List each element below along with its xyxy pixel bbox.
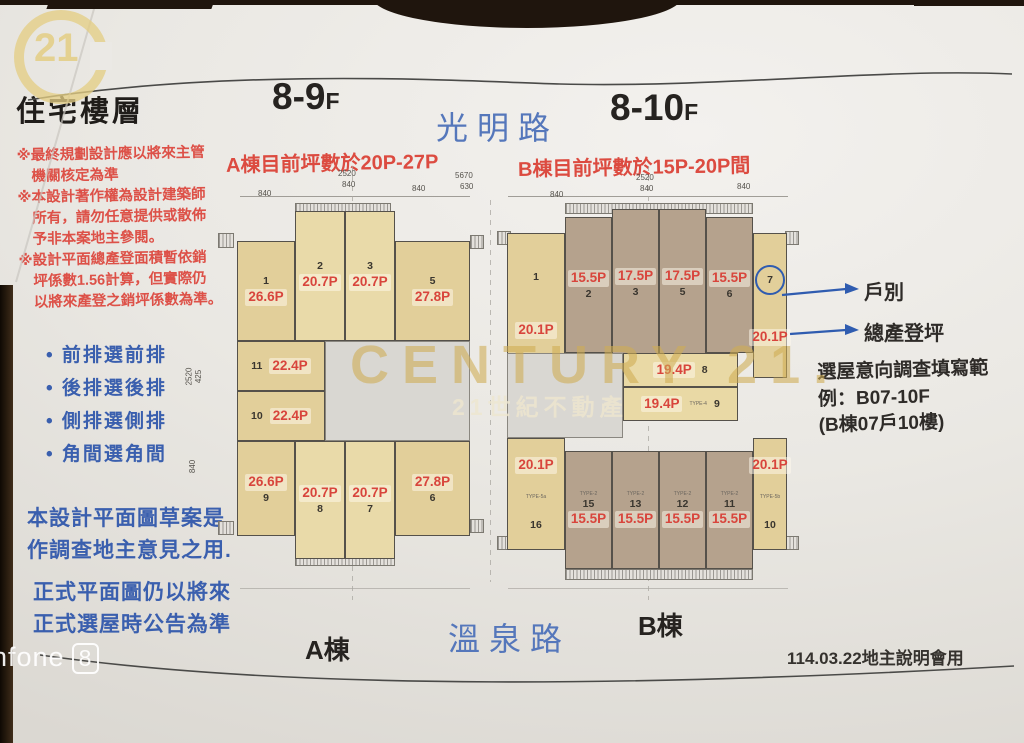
unit-type-label: TYPE-2 [674,492,692,497]
unit-room: 20.1P TYPE-5b 10 [753,438,787,550]
dim-between-outer: 5670 [455,171,473,180]
floor-range-b: 8-10F [610,87,698,129]
unit-room: 20.7P 7 [345,441,395,559]
draft-purpose-note: 本設計平面圖草案是 作調查地主意見之用. [27,503,232,566]
corner-balcony [470,519,484,533]
century21-logo: 21 [12,2,112,106]
table-edge-top-left [46,0,214,9]
unit-area: 15.5P [709,511,750,528]
dim-b-left: 840 [550,190,563,199]
unit-number: 2 [586,289,592,300]
unit-area: 20.7P [299,274,340,291]
dim-b-right: 840 [737,182,750,191]
dim-a-side-mid: 425 [194,370,203,383]
unit-room: 5 27.8P [395,241,470,341]
unit-area: 26.6P [245,289,286,306]
unit-type-label: TYPE-5b [760,495,780,500]
unit-number: 6 [430,493,436,504]
dim-line-a-bottom [240,588,470,589]
unit-number: 3 [367,261,373,272]
meeting-date-note: 114.03.22地主說明會用 [787,644,964,669]
floor-range-a-suffix: F [325,88,339,114]
unit-area: 27.8P [412,474,453,491]
unit-number: 8 [317,504,323,515]
table-edge-top-right [914,0,1024,6]
corner-balcony [785,536,799,550]
building-b-label: B棟 [638,606,683,643]
unit-area: 19.4P [641,396,682,413]
dim-a-side-upper: 2520 [184,368,193,386]
dim-a-total: 2520 [338,169,356,178]
unit-room: TYPE-2 11 15.5P [706,451,753,569]
dim-b-total: 2520 [636,173,654,182]
unit-room: TYPE-2 13 15.5P [612,451,659,569]
unit-area: 17.5P [615,268,656,285]
unit-area: 20.1P [515,457,556,474]
unit-number: 11 [251,361,262,372]
unit-area: 26.6P [245,474,286,491]
logo-ring-gap [90,42,112,70]
unit-number: 7 [767,275,773,286]
road-name-bottom: 溫泉路 [448,614,571,660]
unit-room: TYPE-2 12 15.5P [659,451,706,569]
camera-watermark: nfone8 [0,642,99,674]
unit-room: 15.5P 2 [565,217,612,353]
unit-room: 26.6P 9 [237,441,295,536]
corner-balcony [218,233,234,248]
corner-balcony [470,235,484,249]
unit-number: 11 [724,499,735,510]
unit-number: 10 [764,520,776,531]
unit-area: 15.5P [568,270,609,287]
unit-room: 2 20.7P [295,211,345,341]
dim-a-center: 840 [342,180,355,189]
unit-number: 13 [630,499,642,510]
balcony-hatch [565,569,753,580]
selection-rule-4: • 角間選角間 [46,439,167,466]
unit-type-label: TYPE-4 [689,402,707,407]
unit-number: 5 [430,276,436,287]
building-a-label: A棟 [305,630,350,667]
unit-room: 15.5P 6 [706,217,753,353]
unit-number: 3 [633,287,639,298]
logo-number: 21 [34,26,79,71]
survey-example-note: 選屋意向調查填寫範 例：B07-10F (B棟07戶10樓) [817,356,990,440]
unit-highlight-circle: 7 [755,265,785,295]
photographed-floor-plan-document: 8-9F 光明路 8-10F A棟目前坪數於20P-27P B棟目前坪數於15P… [0,0,1024,743]
unit-number: 6 [727,289,733,300]
unit-room: 11 22.4P [237,341,325,391]
brand-watermark-subtitle: 21世紀不動產 [452,388,628,422]
unit-area: 15.5P [568,511,609,528]
area-range-note-b: B棟目前坪數於15P-20P間 [518,149,751,182]
unit-area: 17.5P [662,268,703,285]
unit-number: 9 [263,493,269,504]
unit-number: 5 [680,287,686,298]
unit-number: 1 [263,276,269,287]
table-edge-left [0,285,13,743]
unit-number: 10 [251,411,263,422]
brand-watermark: CENTURY 21. [350,334,841,396]
unit-type-label: TYPE-5a [526,495,546,500]
floor-range-b-suffix: F [684,99,698,125]
unit-type-label: TYPE-2 [721,492,739,497]
unit-number: 12 [677,499,689,510]
floor-range-a-number: 8-9 [272,76,325,117]
dim-between-inner: 630 [460,182,473,191]
dim-line-a-top [240,196,470,197]
disclaimer-notes: ※最終規劃設計應以將來主管 機關核定為準 ※本設計著作權為設計建築師 所有，請勿… [17,142,244,314]
final-plan-note: 正式平面圖仍以將來 正式選屋時公告為準 [33,577,231,640]
selection-rule-2: • 後排選後排 [46,373,167,400]
unit-area: 15.5P [662,511,703,528]
unit-room: TYPE-2 15 15.5P [565,451,612,569]
unit-number: 15 [583,499,595,510]
unit-area: 20.7P [349,485,390,502]
dim-a-side-lower: 840 [188,460,197,473]
unit-area: 22.4P [269,358,310,375]
corner-balcony [218,521,234,535]
unit-number: 7 [367,504,373,515]
selection-rule-1: • 前排選前排 [46,340,167,367]
unit-area: 15.5P [709,270,750,287]
unit-area: 22.4P [270,408,311,425]
camera-watermark-number: 8 [72,643,100,674]
unit-room: 27.8P 6 [395,441,470,536]
road-name-top: 光明路 [436,103,559,149]
unit-room: 10 22.4P [237,391,325,441]
area-range-note-a: A棟目前坪數於20P-27P [226,145,439,178]
unit-area: 20.7P [299,485,340,502]
unit-room: 3 20.7P [345,211,395,341]
corner-balcony [785,231,799,245]
unit-type-label: TYPE-2 [580,492,598,497]
unit-area: 20.7P [349,274,390,291]
unit-area: 20.1P [749,457,790,474]
unit-room: 20.1P TYPE-5a 16 [507,438,565,550]
selection-rule-3: • 側排選側排 [46,406,167,433]
unit-area: 27.8P [412,289,453,306]
unit-type-label: TYPE-2 [627,492,645,497]
unit-room: 20.7P 8 [295,441,345,559]
unit-number: 1 [533,272,539,283]
unit-number: 9 [714,399,720,410]
unit-room: 1 26.6P [237,241,295,341]
dim-a-right: 840 [412,184,425,193]
unit-number: 2 [317,261,323,272]
dim-b-center: 840 [640,184,653,193]
dim-a-left: 840 [258,189,271,198]
floor-range-b-number: 8-10 [610,87,684,128]
unit-area: 15.5P [615,511,656,528]
unit-number: 16 [530,520,542,531]
camera-watermark-text: nfone [0,642,65,672]
legend-registered-area: 總產登坪 [864,317,944,346]
legend-unit-number: 戶別 [864,276,904,305]
floor-range-a: 8-9F [272,76,340,118]
